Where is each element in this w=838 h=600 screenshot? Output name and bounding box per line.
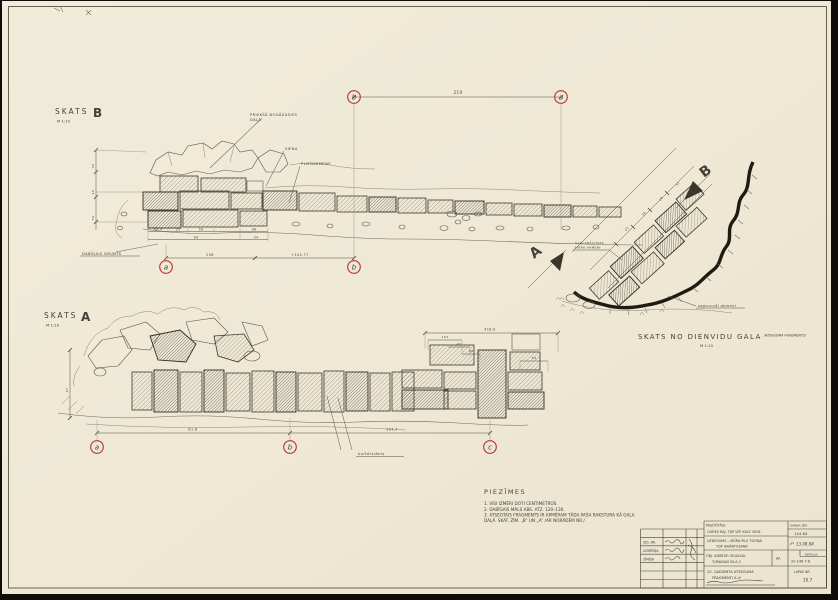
tb-task-line2: TDP IEKĀRTOŠANA bbox=[715, 544, 748, 549]
dim-94: 94 bbox=[194, 236, 199, 240]
dim-34: 34 bbox=[254, 236, 259, 240]
label-fallen-part-line1: PRIEKŠĀ NOGĀZUSIES bbox=[250, 112, 297, 117]
dim-50: 50 bbox=[91, 216, 95, 221]
grid-marker-c-viewa-letter: c bbox=[488, 443, 492, 451]
plan-note-line1: SAGLABĀJUŠIES bbox=[575, 240, 604, 245]
dim-54: 54 bbox=[532, 356, 537, 360]
dim-96: 96 bbox=[252, 228, 257, 232]
south-view-suffix: /ATSEGUMA FRAGMENTS/ bbox=[763, 334, 807, 338]
label-siena: SIENA bbox=[285, 147, 298, 151]
tb-address-sub: PP. bbox=[776, 557, 781, 561]
tb-code-value: 144-84 bbox=[794, 531, 808, 536]
dim-256: 256 bbox=[206, 253, 214, 257]
dim-103: 103 bbox=[442, 335, 449, 339]
dim-197-7: 197,7 bbox=[386, 428, 398, 432]
note-line: DAĻĀ. SKAT. ZĪM. „B” UN „A” /AR NORĀDĒM … bbox=[484, 518, 585, 523]
dim-40-4: 40,4 bbox=[154, 228, 163, 232]
grid-marker-b-viewa-letter: b bbox=[288, 443, 293, 451]
view-b-letter: B bbox=[93, 106, 102, 120]
dim-416-9: 416,9 bbox=[484, 328, 495, 332]
label-sagruvusi-akmeni: sagruvuši akmeņi bbox=[698, 304, 736, 308]
tb-role-3: ZĪMĒJA bbox=[643, 556, 655, 561]
tb-client-label: PASŪTĪTĀJS: bbox=[706, 523, 726, 528]
tb-address-value: TURAIDAS IELA 2 bbox=[711, 560, 741, 564]
view-b-title: SKATS bbox=[55, 107, 88, 116]
south-view-scale: M 1:10 bbox=[700, 343, 714, 348]
dim-28: 28 bbox=[469, 349, 474, 353]
tb-role-2: UZMĒRĪJA bbox=[643, 548, 659, 553]
tb-date-value: 13.08.84. bbox=[796, 542, 815, 547]
view-a-scale: M 1:10 bbox=[46, 323, 60, 328]
dim-81-6: 81,6 bbox=[188, 428, 197, 432]
south-view-title: SKATS NO DIENVIDU GALA bbox=[638, 333, 762, 341]
dim-30: 30 bbox=[91, 164, 95, 169]
note-line: 1. VISI IZMĒRI DOTI CENTIMETROS. bbox=[484, 501, 558, 506]
dim-elevation: +142,77 bbox=[291, 253, 309, 257]
paper bbox=[2, 1, 831, 594]
tb-role-1: IZG. NR. bbox=[643, 541, 656, 545]
tb-task-line1: UZDEVUMS – MŪRA PILS TILTIŅA bbox=[707, 538, 763, 543]
label-plienakmens: PLIENAKMENS bbox=[301, 162, 331, 166]
tb-detail-label: DETAĻAS bbox=[805, 553, 818, 557]
dim-25: 25 bbox=[176, 228, 181, 232]
tb-detail-value: 20.146.7-6 bbox=[791, 560, 810, 564]
tb-sheet-value: 10.7 bbox=[803, 578, 813, 583]
dim-219: 219 bbox=[454, 90, 463, 95]
dim-47: 47 bbox=[457, 342, 462, 346]
grid-marker-a-top-letter: a bbox=[559, 93, 563, 101]
grid-marker-b-viewb-letter: b bbox=[352, 263, 357, 271]
label-fallen-part-line2: DAĻA bbox=[250, 118, 261, 122]
tb-address-label: OBJ. ADRESE: SIGULDA, bbox=[706, 554, 746, 558]
view-a-letter: A bbox=[81, 310, 91, 324]
label-dabigais-grunts: DABĪGAIS GRUNTS bbox=[82, 251, 122, 256]
grid-marker-b-top-letter: b bbox=[352, 93, 357, 101]
view-a-title: SKATS bbox=[44, 311, 77, 320]
dim-45: 45 bbox=[65, 388, 69, 393]
grid-marker-a-viewb-letter: a bbox=[164, 263, 168, 271]
label-kulturslanis: kultūrslānis bbox=[358, 451, 385, 456]
tb-code-label: DARBA ZĪM. bbox=[790, 523, 808, 528]
note-line: 2. DABĪGAIS MĀLS ABS. ATZ. 120–130. bbox=[484, 507, 565, 512]
drawing-sheet: SKATS B M 1:10 bbox=[0, 0, 838, 600]
grid-marker-a-viewa-letter: a bbox=[95, 443, 99, 451]
tb-object-line1: 20. GADSIMTA ATSEGUMA bbox=[707, 570, 754, 574]
view-b-scale: M 1:10 bbox=[57, 119, 71, 124]
note-line: 3. ATSEGTAIS FRAGMENTS IR APMĒRAM TĀDA P… bbox=[484, 513, 635, 518]
tb-object-line2: FRAGMENTI A–X bbox=[712, 576, 741, 580]
tb-sheet-label: LAPAS NR. bbox=[794, 570, 810, 574]
dim-59: 59 bbox=[199, 228, 204, 232]
notes-heading: PIEZĪMES bbox=[484, 487, 526, 496]
plan-note-line2: MŪRA AKMEŅI bbox=[575, 245, 601, 250]
tb-client-value: OGRES RAJ. TDP IZP. KULT. NOD. bbox=[707, 530, 761, 534]
dim-20: 20 bbox=[91, 190, 95, 195]
